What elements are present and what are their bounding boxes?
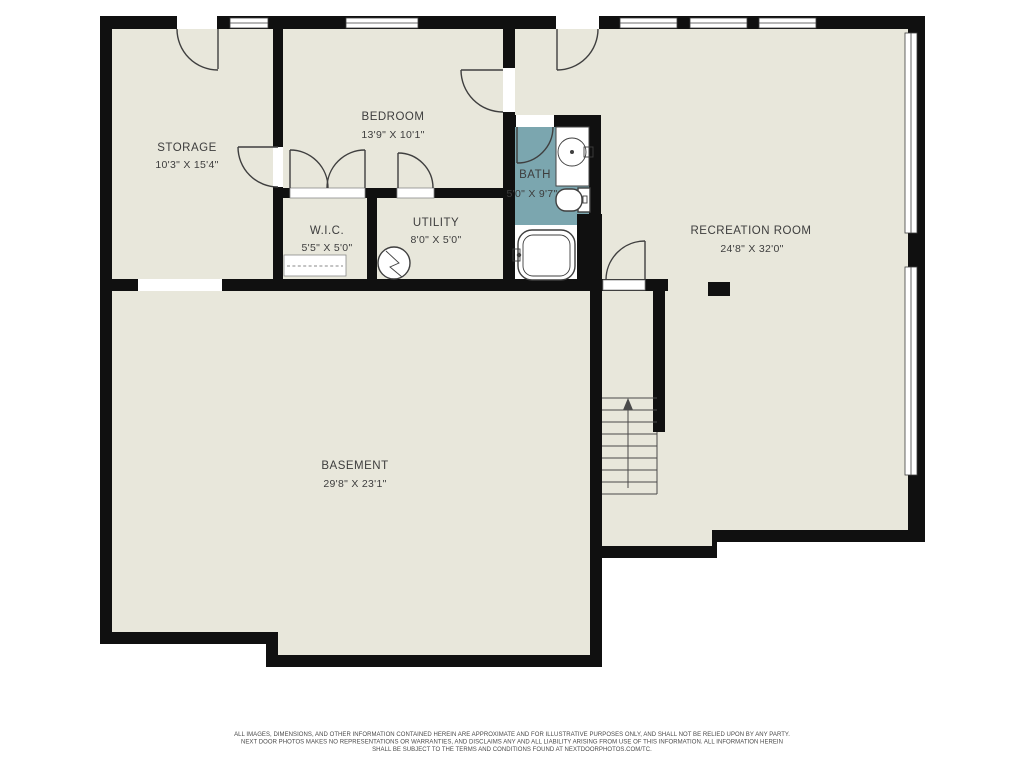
storage-dims: 10'3" X 15'4" xyxy=(155,159,218,171)
bath-label: BATH xyxy=(519,169,551,181)
stairwell-left-wall xyxy=(590,291,602,667)
disclaimer-line-1: ALL IMAGES, DIMENSIONS, AND OTHER INFORM… xyxy=(234,732,790,738)
bedroom-rec-door-opening xyxy=(503,68,515,112)
bath-door-opening xyxy=(516,115,554,127)
rec-window-2 xyxy=(690,18,747,28)
rec-floor-main xyxy=(601,115,908,530)
floor-plan-canvas: STORAGE 10'3" X 15'4" BEDROOM 13'9" X 10… xyxy=(0,0,1024,768)
rec-right-window-lower xyxy=(905,267,917,475)
bath-dims: 5'0" X 9'7" xyxy=(507,188,558,200)
rec-window-3 xyxy=(759,18,816,28)
bedroom-label: BEDROOM xyxy=(362,111,425,123)
bedroom-dims: 13'9" X 10'1" xyxy=(361,129,424,141)
stairs-door-threshold xyxy=(603,280,645,290)
rec-right-window-upper xyxy=(905,33,917,233)
disclaimer-line-2: NEXT DOOR PHOTOS MAKES NO REPRESENTATION… xyxy=(241,740,783,746)
stairwell-right-wall xyxy=(653,291,665,432)
storage-window xyxy=(230,18,268,28)
support-column xyxy=(708,282,730,296)
storage-floor xyxy=(112,29,273,279)
basement-floor-lower xyxy=(278,632,590,655)
floor-plan-page: STORAGE 10'3" X 15'4" BEDROOM 13'9" X 10… xyxy=(0,0,1024,768)
utility-dims: 8'0" X 5'0" xyxy=(411,234,462,246)
toilet-icon xyxy=(556,188,590,212)
water-heater-icon xyxy=(378,247,410,279)
wic-dims: 5'5" X 5'0" xyxy=(302,242,353,254)
wic-double-door-threshold xyxy=(290,188,365,198)
sink-vanity xyxy=(556,127,593,186)
disclaimer-line-3: SHALL BE SUBJECT TO THE TERMS AND CONDIT… xyxy=(372,747,652,753)
utility-door-threshold xyxy=(397,188,434,198)
storage-bedroom-door-opening xyxy=(273,147,283,187)
rec-top-door-opening xyxy=(556,16,599,29)
storage-label: STORAGE xyxy=(157,142,217,154)
rec-floor-bottom-left xyxy=(602,530,712,546)
bedroom-floor xyxy=(283,29,503,188)
bathtub-icon xyxy=(513,230,575,280)
closet-shelf xyxy=(284,255,346,276)
rec-room-dims: 24'8" X 32'0" xyxy=(720,243,783,255)
basement-label: BASEMENT xyxy=(321,460,388,472)
rec-floor-top xyxy=(515,29,908,115)
wic-label: W.I.C. xyxy=(310,225,344,237)
rec-window-1 xyxy=(620,18,677,28)
bedroom-window xyxy=(346,18,418,28)
basement-dims: 29'8" X 23'1" xyxy=(323,478,386,490)
storage-top-door-opening xyxy=(177,16,217,29)
rec-room-label: RECREATION ROOM xyxy=(690,225,811,237)
basement-storage-opening xyxy=(138,279,222,291)
utility-label: UTILITY xyxy=(413,217,459,229)
